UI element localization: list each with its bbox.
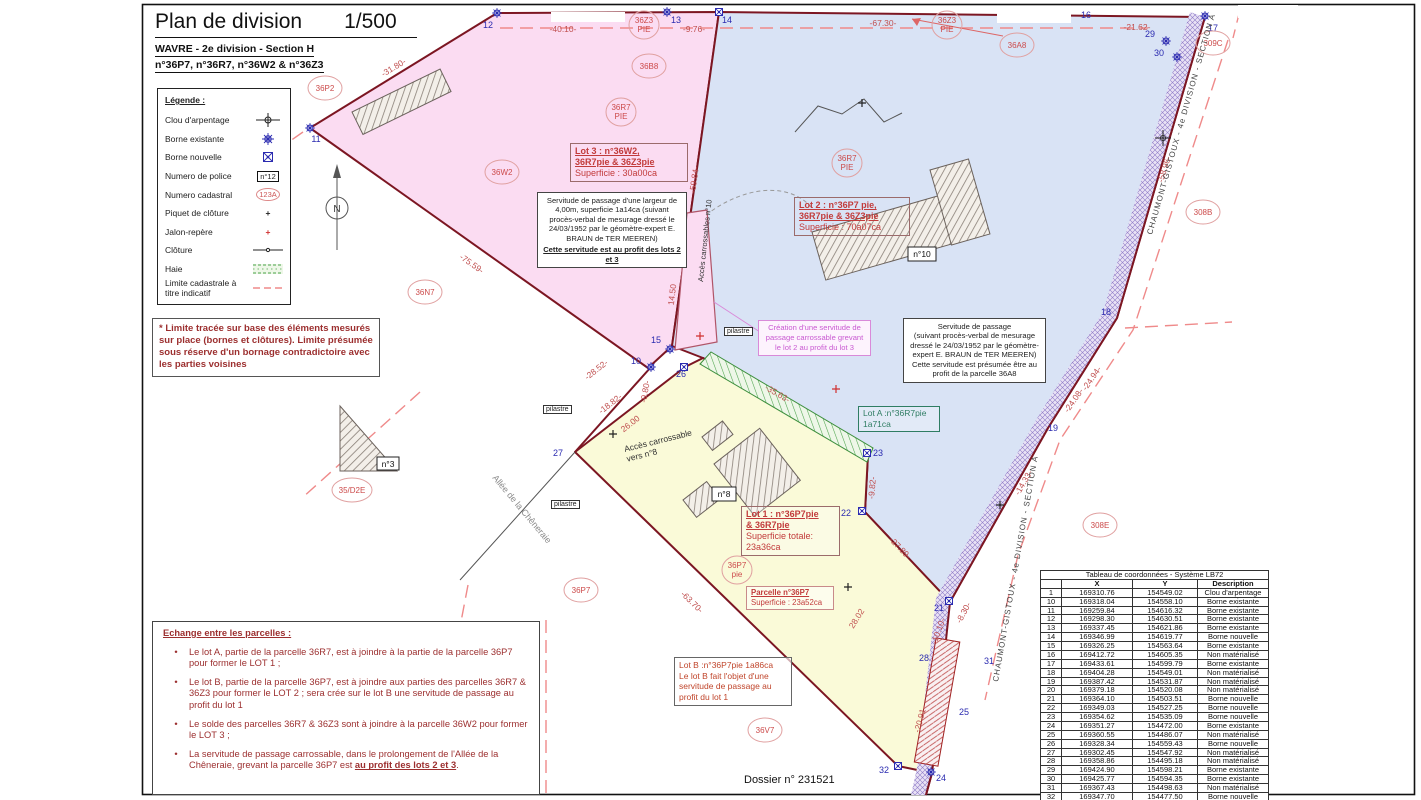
lot1-label: Lot 1 : n°36P7pie& 36R7pie Superficie to… [741,506,840,556]
point-label: 29 [1145,29,1155,39]
police-number-sample: n°12 [257,171,279,182]
point-label: 12 [483,20,493,30]
exchange-bullet: •Le solde des parcelles 36R7 & 36Z3 sont… [163,719,529,742]
cadastral-label: 36V7 [756,726,775,735]
servitude-creation-box: Création d'une servitude de passage carr… [758,320,871,356]
survey-stake-icon: + [253,227,283,237]
point-label: 13 [671,15,681,25]
cadastral-label: 36A8 [1008,41,1027,50]
dossier-number: Dossier n° 231521 [744,774,835,786]
point-label: 18 [1101,307,1111,317]
scale-label: 1/500 [344,10,397,34]
coordinate-row: 18169404.28154549.01Non matérialisé [1041,668,1269,677]
boundary-note: * Limite tracée sur base des éléments me… [152,318,380,377]
coordinate-row: 10169318.04154558.10Borne existante [1041,597,1269,606]
parcel-36p7-label: Parcelle n°36P7Superficie : 23a52ca [746,586,834,610]
legend-item: Piquet de clôture + [165,204,283,223]
cadastral-label: 36P2 [316,84,335,93]
point-label: 24 [936,773,946,783]
coordinate-row: 26169328.34154559.43Borne nouvelle [1041,739,1269,748]
legend-item: Borne existante [165,130,283,149]
cadastral-label: 308E [1091,521,1110,530]
legend-item: Limite cadastrale à titre indicatif [165,278,283,298]
hedge-icon [253,263,283,275]
point-label: 22 [841,508,851,518]
legend-item: Clôture [165,241,283,260]
pilastre-label: pilastre [551,500,580,509]
coordinate-row: 24169351.27154472.00Borne existante [1041,721,1269,730]
measurement-label: -67.30- [870,18,897,28]
cadastral-label: 36P7 [572,586,591,595]
page-title: Plan de division [155,10,302,34]
point-label: 15 [651,335,661,345]
legend-item: Clou d'arpentage [165,111,283,130]
cadastral-number-sample: 123A [256,188,280,201]
point-label: 19 [1048,423,1058,433]
point-label: 14 [722,15,732,25]
cadastral-limit-icon [253,284,283,292]
exchange-bullet: •Le lot A, partie de la parcelle 36R7, e… [163,647,529,670]
coordinate-row: 1169310.76154549.02Clou d'arpentage [1041,588,1269,597]
point-label: 30 [1154,48,1164,58]
fence-line-icon [253,246,283,254]
subtitle-location: WAVRE - 2e division - Section H [155,43,314,57]
point-label: 10 [631,356,641,366]
title-block: Plan de division 1/500 WAVRE - 2e divisi… [155,10,417,73]
point-label: 28 [919,653,929,663]
coordinate-row: 32169347.70154477.50Borne nouvelle [1041,792,1269,800]
lot2-label: Lot 2 : n°36P7 pie,36R7pie & 36Z3pie Sup… [794,197,910,236]
north-label: N [333,204,340,215]
point-label: 32 [879,765,889,775]
existing-marker-icon [253,131,283,147]
legend-item: Haie [165,260,283,279]
cadastral-label: 35/D2E [339,486,366,495]
police-number-label: n°8 [718,489,731,499]
exchange-note-box: Echange entre les parcelles : •Le lot A,… [152,621,540,795]
survey-nail-icon [253,112,283,128]
exchange-bullet: • La servitude de passage carrossable, d… [163,749,529,772]
measurement-label: -9.76- [683,24,705,34]
point-label: 31 [984,656,994,666]
police-number-label: n°10 [913,249,931,259]
subtitle-parcels: n°36P7, n°36R7, n°36W2 & n°36Z3 [155,59,324,73]
lotB-label: Lot B :n°36P7pie 1a86caLe lot B fait l'o… [674,657,792,706]
fence-post-icon: + [253,208,283,218]
exchange-title: Echange entre les parcelles : [163,628,529,640]
point-label: 25 [959,707,969,717]
coordinates-table-body: 1169310.76154549.02Clou d'arpentage10169… [1041,588,1269,800]
pilastre-label: pilastre [724,327,753,336]
point-label: 27 [553,448,563,458]
coordinates-table: Tableau de coordonnées - Système LB72 X … [1040,570,1269,800]
pilastre-label: pilastre [543,405,572,414]
measurement-label: -40.10- [550,24,577,34]
point-label: 11 [311,134,320,144]
coordinate-row: 25169360.55154486.07Non matérialisé [1041,730,1269,739]
lotA-label: Lot A :n°36R7pie1a71ca [858,406,940,432]
cadastral-label: 36N7 [415,288,435,297]
plan-sheet: N -31.80- -40.10- -9.76- -67.30- -21.62-… [0,0,1421,800]
point-label: 21 [934,603,944,613]
measurement-label: -9.82- [866,476,878,499]
point-label: 16 [1081,10,1091,20]
cadastral-label: 36B8 [640,62,659,71]
legend-title: Légende : [165,95,283,105]
servitude-left-box: Servitude de passage d'une largeur de 4,… [537,192,687,268]
legend-item: Jalon-repère + [165,223,283,242]
coordinate-row: 16169412.72154605.35Non matérialisé [1041,650,1269,659]
legend-item: Numero cadastral 123A [165,185,283,204]
legend-box: Légende : Clou d'arpentage Borne existan… [157,88,291,305]
legend-item: Borne nouvelle [165,148,283,167]
new-marker-icon [253,149,283,165]
cadastral-label: 308B [1194,208,1213,217]
cadastral-label: 36W2 [492,168,513,177]
servitude-right-box: Servitude de passage (suivant procès-ver… [903,318,1046,383]
legend-item: Numero de police n°12 [165,167,283,186]
point-label: 23 [873,448,883,458]
exchange-bullet: •Le lot B, partie de la parcelle 36P7, e… [163,677,529,712]
coordinates-table-header: X Y Description [1041,579,1269,588]
lot3-label: Lot 3 : n°36W2,36R7pie & 36Z3pie Superfi… [570,143,688,182]
point-label: 26 [676,369,686,379]
police-number-label: n°3 [382,459,395,469]
coordinate-row: 17169433.61154599.79Borne existante [1041,659,1269,668]
